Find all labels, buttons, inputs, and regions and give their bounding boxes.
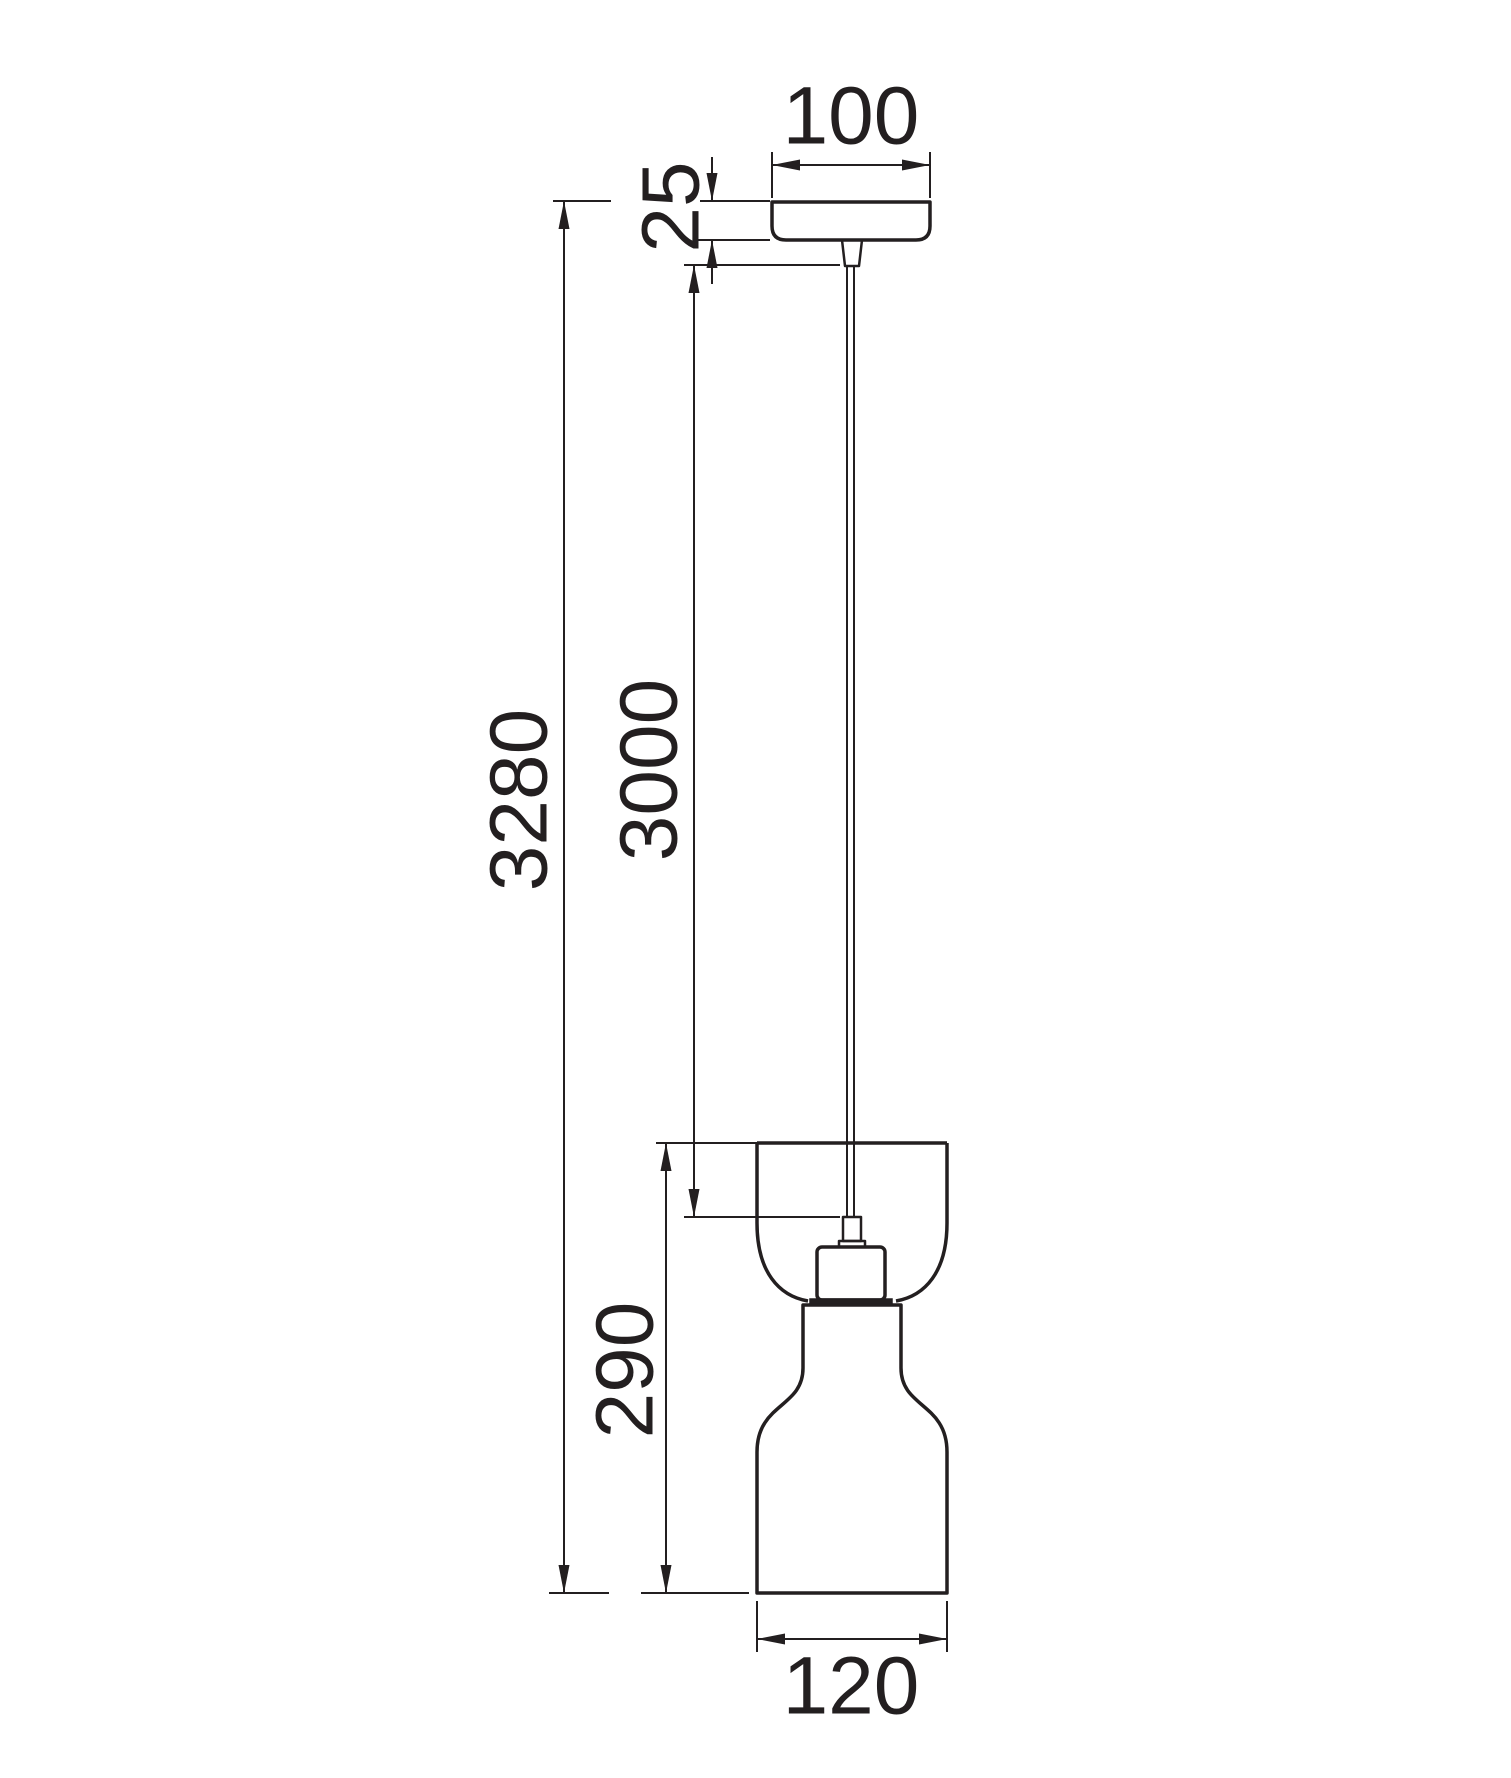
dim-3280-label: 3280: [474, 709, 565, 891]
pendant-dimension-drawing: 100 25 3000 3280: [0, 0, 1511, 1778]
dim-25-label: 25: [626, 161, 717, 252]
arrowhead-up: [661, 1143, 672, 1171]
arrowhead-down: [689, 1189, 700, 1217]
cable-gland: [842, 240, 862, 266]
ceiling-canopy: [772, 202, 930, 240]
technical-drawing-canvas: 100 25 3000 3280: [0, 0, 1511, 1778]
upper-shade-bowl: [757, 1143, 947, 1301]
arrowhead-up: [689, 265, 700, 293]
dimension-shade-height: 290: [580, 1143, 758, 1593]
socket-body: [817, 1247, 885, 1300]
dimension-shade-diameter: 120: [757, 1601, 947, 1732]
arrowhead-down: [661, 1565, 672, 1593]
dim-100-label: 100: [783, 71, 920, 162]
arrowhead-up: [559, 201, 570, 229]
dim-120-label: 120: [783, 1641, 920, 1732]
dim-3000-label: 3000: [604, 679, 695, 861]
dimension-canopy-width: 100: [772, 71, 930, 199]
pendant-fixture: [757, 202, 947, 1593]
arrowhead-right: [919, 1634, 947, 1645]
arrowhead-left: [757, 1634, 785, 1645]
lower-shade: [757, 1305, 947, 1593]
dim-290-label: 290: [580, 1302, 671, 1439]
socket-nipple: [843, 1217, 861, 1241]
dimension-suspension-length: 3000: [604, 265, 841, 1217]
arrowhead-down: [559, 1565, 570, 1593]
